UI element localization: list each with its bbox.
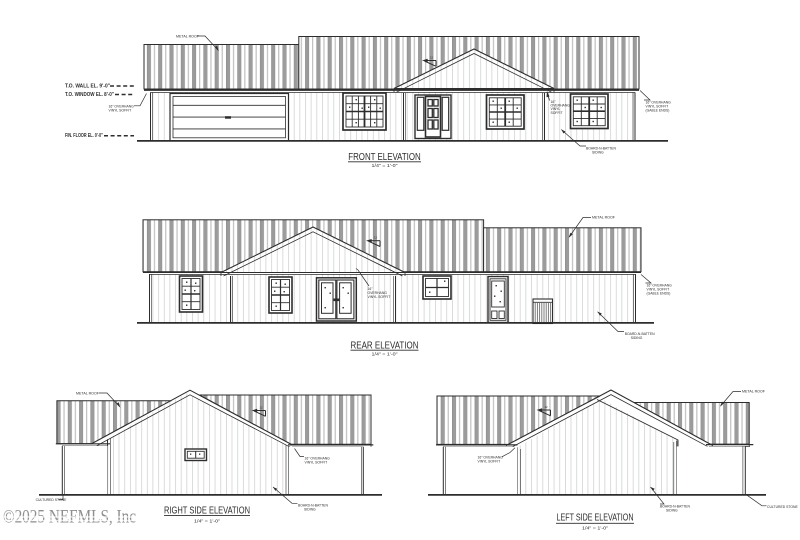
svg-text:12: 12 (545, 405, 549, 409)
svg-text:CULTURED STONE: CULTURED STONE (767, 505, 799, 509)
svg-text:12: 12 (260, 406, 264, 410)
svg-text:1/4" = 1'-0": 1/4" = 1'-0" (582, 525, 608, 530)
svg-text:12: 12 (374, 236, 378, 240)
svg-text:1/4" = 1'-0": 1/4" = 1'-0" (372, 163, 398, 168)
svg-text:SIDING: SIDING (631, 336, 643, 340)
svg-text:SIDING: SIDING (304, 508, 316, 512)
svg-text:METAL ROOF: METAL ROOF (76, 392, 100, 396)
svg-text:FIN. FLOOR EL. 0'-0": FIN. FLOOR EL. 0'-0" (65, 133, 103, 139)
svg-text:12: 12 (430, 56, 434, 60)
svg-text:METAL ROOF: METAL ROOF (176, 35, 200, 39)
svg-text:T.O. WALL EL. 9'-0": T.O. WALL EL. 9'-0" (65, 84, 111, 90)
svg-text:REAR ELEVATION: REAR ELEVATION (351, 340, 419, 351)
svg-text:VINYL SOFFIT: VINYL SOFFIT (368, 295, 391, 299)
svg-text:METAL ROOF: METAL ROOF (592, 216, 616, 220)
svg-text:VINYL SOFFIT: VINYL SOFFIT (478, 459, 501, 463)
svg-text:METAL ROOF: METAL ROOF (742, 390, 766, 394)
svg-text:1/4" = 1'-0": 1/4" = 1'-0" (194, 519, 220, 524)
svg-text:1/4" = 1'-0": 1/4" = 1'-0" (372, 351, 398, 356)
svg-text:VINYL SOFFIT: VINYL SOFFIT (305, 460, 328, 464)
svg-text:CULTURED STONE: CULTURED STONE (36, 498, 68, 502)
svg-text:SIDING: SIDING (666, 508, 678, 512)
svg-text:RIGHT SIDE ELEVATION: RIGHT SIDE ELEVATION (164, 506, 250, 517)
svg-text:(GABLE ENDS): (GABLE ENDS) (647, 292, 671, 296)
svg-text:LEFT SIDE ELEVATION: LEFT SIDE ELEVATION (557, 513, 634, 524)
svg-text:SOFFIT: SOFFIT (551, 111, 563, 115)
svg-text:T.O. WINDOW EL. 8'-0": T.O. WINDOW EL. 8'-0" (65, 92, 115, 98)
svg-text:SIDING: SIDING (592, 151, 604, 155)
svg-text:VINYL SOFFIT: VINYL SOFFIT (109, 109, 132, 113)
svg-text:(GABLE ENDS): (GABLE ENDS) (646, 109, 670, 113)
